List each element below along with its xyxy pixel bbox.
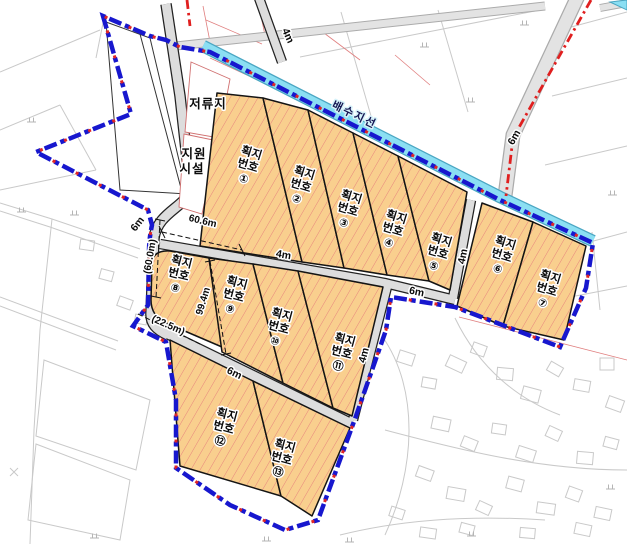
parcels	[151, 93, 586, 516]
support-facility-label-line2: 시설	[179, 161, 204, 176]
land-use-plan-map: 저류지 지원 시설 배수지선 획지번호① 획지번호② 획지번호③ 획지번호④ 획…	[0, 0, 627, 544]
road-label-6m-rightmid: 6m	[408, 285, 425, 300]
red-line-top	[187, 0, 190, 26]
support-facility-label-line1: 지원	[181, 146, 206, 161]
road-label-6m-left: 6m	[128, 214, 147, 233]
red-line-northeast	[506, 0, 591, 196]
detention-pond-label: 저류지	[189, 96, 227, 111]
